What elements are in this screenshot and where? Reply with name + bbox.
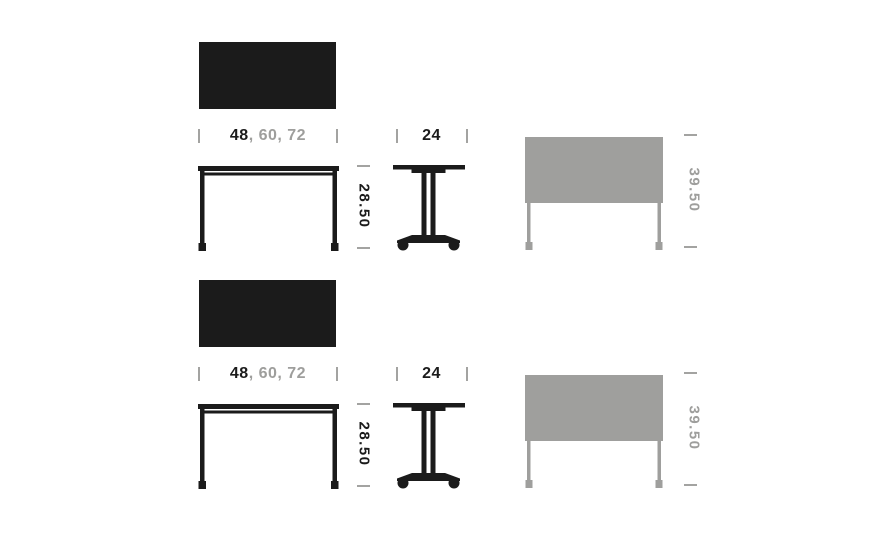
right-caster xyxy=(656,242,663,250)
tabletop-edge xyxy=(198,166,339,171)
spec-row-2: 48, 60, 72 24 28.50 xyxy=(0,280,890,492)
rear-caster-wheel xyxy=(449,240,460,251)
height-dimension-label: 28.50 xyxy=(356,183,373,228)
right-caster xyxy=(331,481,339,489)
left-leg xyxy=(527,203,531,243)
table-front-elevation xyxy=(198,404,339,489)
folded-tabletop xyxy=(525,137,663,203)
column-rear-bar xyxy=(431,411,436,474)
dim-tick-bottom xyxy=(357,247,370,249)
spec-row-1: 48, 60, 72 24 28.50 xyxy=(0,42,890,254)
dim-tick-top xyxy=(684,372,697,374)
nested-height-dimension-label: 39.50 xyxy=(686,405,703,450)
nested-height-dimension-label: 39.50 xyxy=(686,167,703,212)
left-leg xyxy=(527,441,531,481)
dimension-diagram: 48, 60, 72 24 28.50 xyxy=(0,0,890,546)
width-secondary-values: , 60, 72 xyxy=(249,365,306,382)
front-caster-wheel xyxy=(398,240,409,251)
right-leg xyxy=(333,171,338,243)
folded-tabletop xyxy=(525,375,663,441)
right-leg xyxy=(333,409,338,481)
dim-tick-top xyxy=(357,403,370,405)
right-caster xyxy=(331,243,339,251)
left-caster xyxy=(526,242,533,250)
frame-rail xyxy=(202,173,335,176)
left-leg xyxy=(200,409,205,481)
width-secondary-values: , 60, 72 xyxy=(249,127,306,144)
table-top-view xyxy=(199,42,336,109)
table-front-elevation xyxy=(198,166,339,251)
height-dimension-label: 28.50 xyxy=(356,421,373,466)
table-side-elevation xyxy=(393,165,466,251)
rear-caster-wheel xyxy=(449,478,460,489)
table-nested-view xyxy=(525,375,663,488)
top-bracket xyxy=(412,408,446,412)
left-caster xyxy=(199,481,207,489)
top-bracket xyxy=(412,170,446,174)
tabletop-edge xyxy=(393,165,465,170)
dim-tick-bottom xyxy=(357,485,370,487)
width-dimension-label: 48, 60, 72 xyxy=(199,127,337,145)
column-front-bar xyxy=(422,411,427,474)
depth-dimension-label: 24 xyxy=(396,127,467,145)
front-caster-wheel xyxy=(398,478,409,489)
depth-dimension-label: 24 xyxy=(396,365,467,383)
left-caster xyxy=(199,243,207,251)
right-leg xyxy=(658,203,662,243)
frame-rail xyxy=(202,411,335,414)
right-caster xyxy=(656,480,663,488)
width-primary-value: 48 xyxy=(230,127,249,144)
tabletop-edge xyxy=(393,403,465,408)
dim-tick-top xyxy=(684,134,697,136)
right-leg xyxy=(658,441,662,481)
tabletop-edge xyxy=(198,404,339,409)
width-dimension-label: 48, 60, 72 xyxy=(199,365,337,383)
column-rear-bar xyxy=(431,173,436,236)
dim-tick-top xyxy=(357,165,370,167)
column-front-bar xyxy=(422,173,427,236)
table-top-view xyxy=(199,280,336,347)
left-caster xyxy=(526,480,533,488)
dim-tick-bottom xyxy=(684,484,697,486)
dim-tick-bottom xyxy=(684,246,697,248)
table-side-elevation xyxy=(393,403,466,489)
table-nested-view xyxy=(525,137,663,250)
left-leg xyxy=(200,171,205,243)
width-primary-value: 48 xyxy=(230,365,249,382)
